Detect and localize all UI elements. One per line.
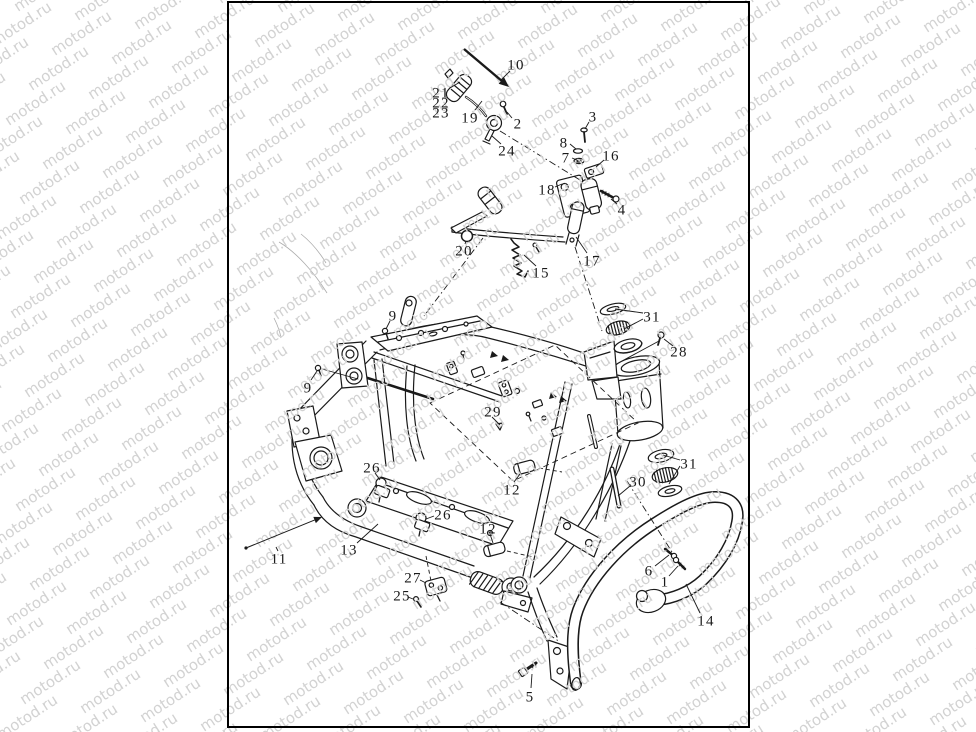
callout-label-16-10: 16 (602, 149, 619, 165)
callout-label-17-15: 17 (583, 254, 600, 270)
callout-label-18-11: 18 (538, 183, 555, 199)
callout-label-12-22: 12 (503, 483, 520, 499)
callout-label-19-4: 19 (461, 111, 478, 127)
callout-label-11-28: 11 (271, 552, 288, 568)
callout-label-23-3: 23 (432, 106, 449, 122)
callout-label-9-16: 9 (389, 309, 398, 325)
callout-label-26-25: 26 (434, 508, 451, 524)
bolt-9a (382, 328, 387, 333)
callout-label-27-29: 27 (404, 571, 421, 587)
callout-label-3-7: 3 (589, 110, 598, 126)
callout-label-13-27: 13 (340, 543, 357, 559)
callout-label-1-32: 1 (661, 575, 670, 591)
callout-label-6-31: 6 (645, 564, 654, 580)
parts-diagram: motod.rumotod.rumotod.rumotod.rumotod.ru… (0, 0, 976, 732)
callout-label-29-20: 29 (484, 405, 501, 421)
callout-label-10-0: 10 (507, 58, 524, 74)
callout-label-4-12: 4 (618, 203, 627, 219)
callout-label-31-23: 31 (680, 457, 697, 473)
callout-label-20-13: 20 (455, 244, 472, 260)
pointer-origin-dot (244, 546, 247, 549)
callout-label-15-14: 15 (532, 266, 549, 282)
callout-label-28-19: 28 (670, 345, 687, 361)
callout-label-31-18: 31 (643, 310, 660, 326)
callout-label-7-9: 7 (562, 151, 571, 167)
callout-label-2-5: 2 (514, 117, 523, 133)
callout-label-9-17: 9 (304, 381, 313, 397)
callout-label-12-26: 12 (479, 522, 496, 538)
parts-catalog-page: motod.rumotod.rumotod.rumotod.rumotod.ru… (0, 0, 976, 732)
callout-label-25-30: 25 (393, 589, 410, 605)
callout-label-5-34: 5 (526, 690, 535, 706)
callout-label-30-24: 30 (629, 475, 646, 491)
callout-label-24-6: 24 (498, 144, 515, 160)
callout-label-8-8: 8 (560, 136, 569, 152)
callout-label-14-33: 14 (697, 614, 714, 630)
callout-label-26-21: 26 (363, 461, 380, 477)
